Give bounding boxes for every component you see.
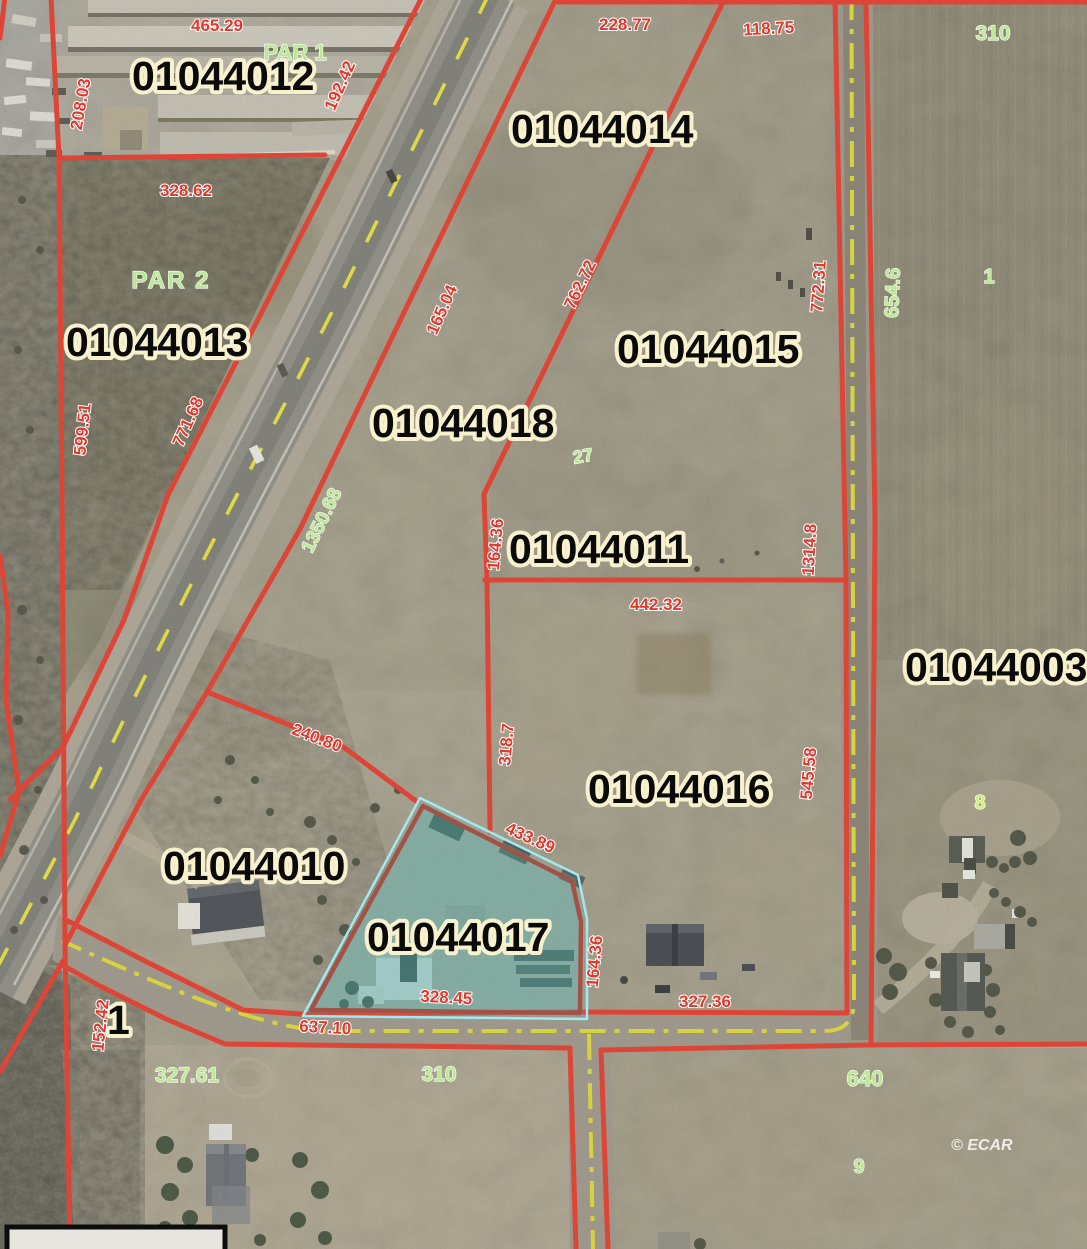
- svg-text:310: 310: [975, 22, 1010, 45]
- svg-text:640: 640: [847, 1066, 884, 1091]
- svg-text:9: 9: [853, 1156, 864, 1178]
- svg-text:01044014: 01044014: [511, 106, 694, 152]
- svg-text:27: 27: [571, 445, 594, 468]
- svg-text:© ECAR: © ECAR: [951, 1137, 1013, 1154]
- svg-text:654.6: 654.6: [881, 267, 905, 318]
- svg-text:01044010: 01044010: [163, 843, 345, 889]
- svg-text:01044017: 01044017: [367, 914, 549, 960]
- svg-text:01044018: 01044018: [372, 400, 554, 446]
- svg-text:327.61: 327.61: [155, 1064, 220, 1087]
- svg-text:228.77: 228.77: [599, 15, 651, 34]
- svg-text:01044011: 01044011: [509, 526, 689, 572]
- svg-text:465.29: 465.29: [191, 16, 243, 35]
- svg-text:772.31: 772.31: [807, 260, 830, 313]
- svg-text:01044013: 01044013: [66, 319, 248, 365]
- svg-text:01044003: 01044003: [905, 644, 1087, 690]
- svg-text:328.45: 328.45: [420, 987, 473, 1009]
- svg-text:1: 1: [983, 266, 994, 288]
- svg-text:318.7: 318.7: [495, 723, 518, 767]
- svg-text:PAR 1: PAR 1: [263, 40, 326, 65]
- svg-text:PAR 2: PAR 2: [132, 267, 211, 294]
- svg-text:637.10: 637.10: [299, 1017, 352, 1039]
- svg-text:01044015: 01044015: [617, 326, 799, 372]
- svg-text:8: 8: [974, 792, 985, 814]
- svg-text:328.62: 328.62: [160, 181, 212, 200]
- svg-text:118.75: 118.75: [743, 18, 795, 40]
- svg-text:327.36: 327.36: [679, 992, 731, 1011]
- svg-text:442.32: 442.32: [630, 595, 682, 614]
- svg-text:1314.8: 1314.8: [799, 523, 821, 576]
- svg-text:310: 310: [421, 1063, 456, 1086]
- svg-text:01044016: 01044016: [588, 766, 770, 812]
